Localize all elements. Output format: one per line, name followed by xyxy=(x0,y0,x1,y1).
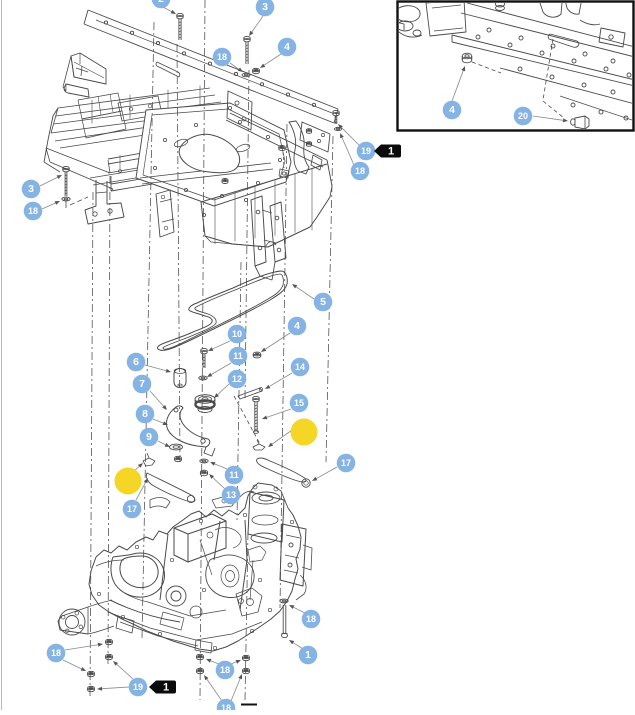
svg-text:18: 18 xyxy=(221,703,231,710)
svg-text:2: 2 xyxy=(158,0,164,5)
svg-text:1: 1 xyxy=(305,649,311,661)
svg-text:3: 3 xyxy=(28,183,34,195)
svg-text:12: 12 xyxy=(232,374,242,384)
svg-text:8: 8 xyxy=(142,408,148,420)
svg-text:7: 7 xyxy=(139,378,145,390)
svg-text:15: 15 xyxy=(294,398,304,408)
svg-text:14: 14 xyxy=(295,362,305,372)
svg-text:11: 11 xyxy=(229,470,239,480)
svg-text:18: 18 xyxy=(355,166,365,176)
svg-text:4: 4 xyxy=(449,104,455,116)
svg-text:18: 18 xyxy=(51,648,61,658)
svg-text:11: 11 xyxy=(233,351,243,361)
svg-text:18: 18 xyxy=(220,665,230,675)
svg-text:9: 9 xyxy=(146,431,152,443)
svg-text:5: 5 xyxy=(320,296,326,308)
svg-text:3: 3 xyxy=(262,1,268,13)
svg-text:1: 1 xyxy=(163,682,169,694)
svg-text:18: 18 xyxy=(28,206,38,216)
svg-text:4: 4 xyxy=(294,320,300,332)
svg-text:18: 18 xyxy=(217,52,227,62)
svg-text:4: 4 xyxy=(284,41,290,53)
svg-text:1: 1 xyxy=(388,146,394,158)
svg-text:10: 10 xyxy=(232,329,242,339)
svg-text:17: 17 xyxy=(127,504,137,514)
svg-text:13: 13 xyxy=(226,490,236,500)
svg-text:20: 20 xyxy=(518,111,528,121)
svg-text:6: 6 xyxy=(133,356,139,368)
svg-text:19: 19 xyxy=(133,682,143,692)
svg-text:17: 17 xyxy=(341,458,351,468)
svg-text:18: 18 xyxy=(306,614,316,624)
svg-text:19: 19 xyxy=(361,146,371,156)
